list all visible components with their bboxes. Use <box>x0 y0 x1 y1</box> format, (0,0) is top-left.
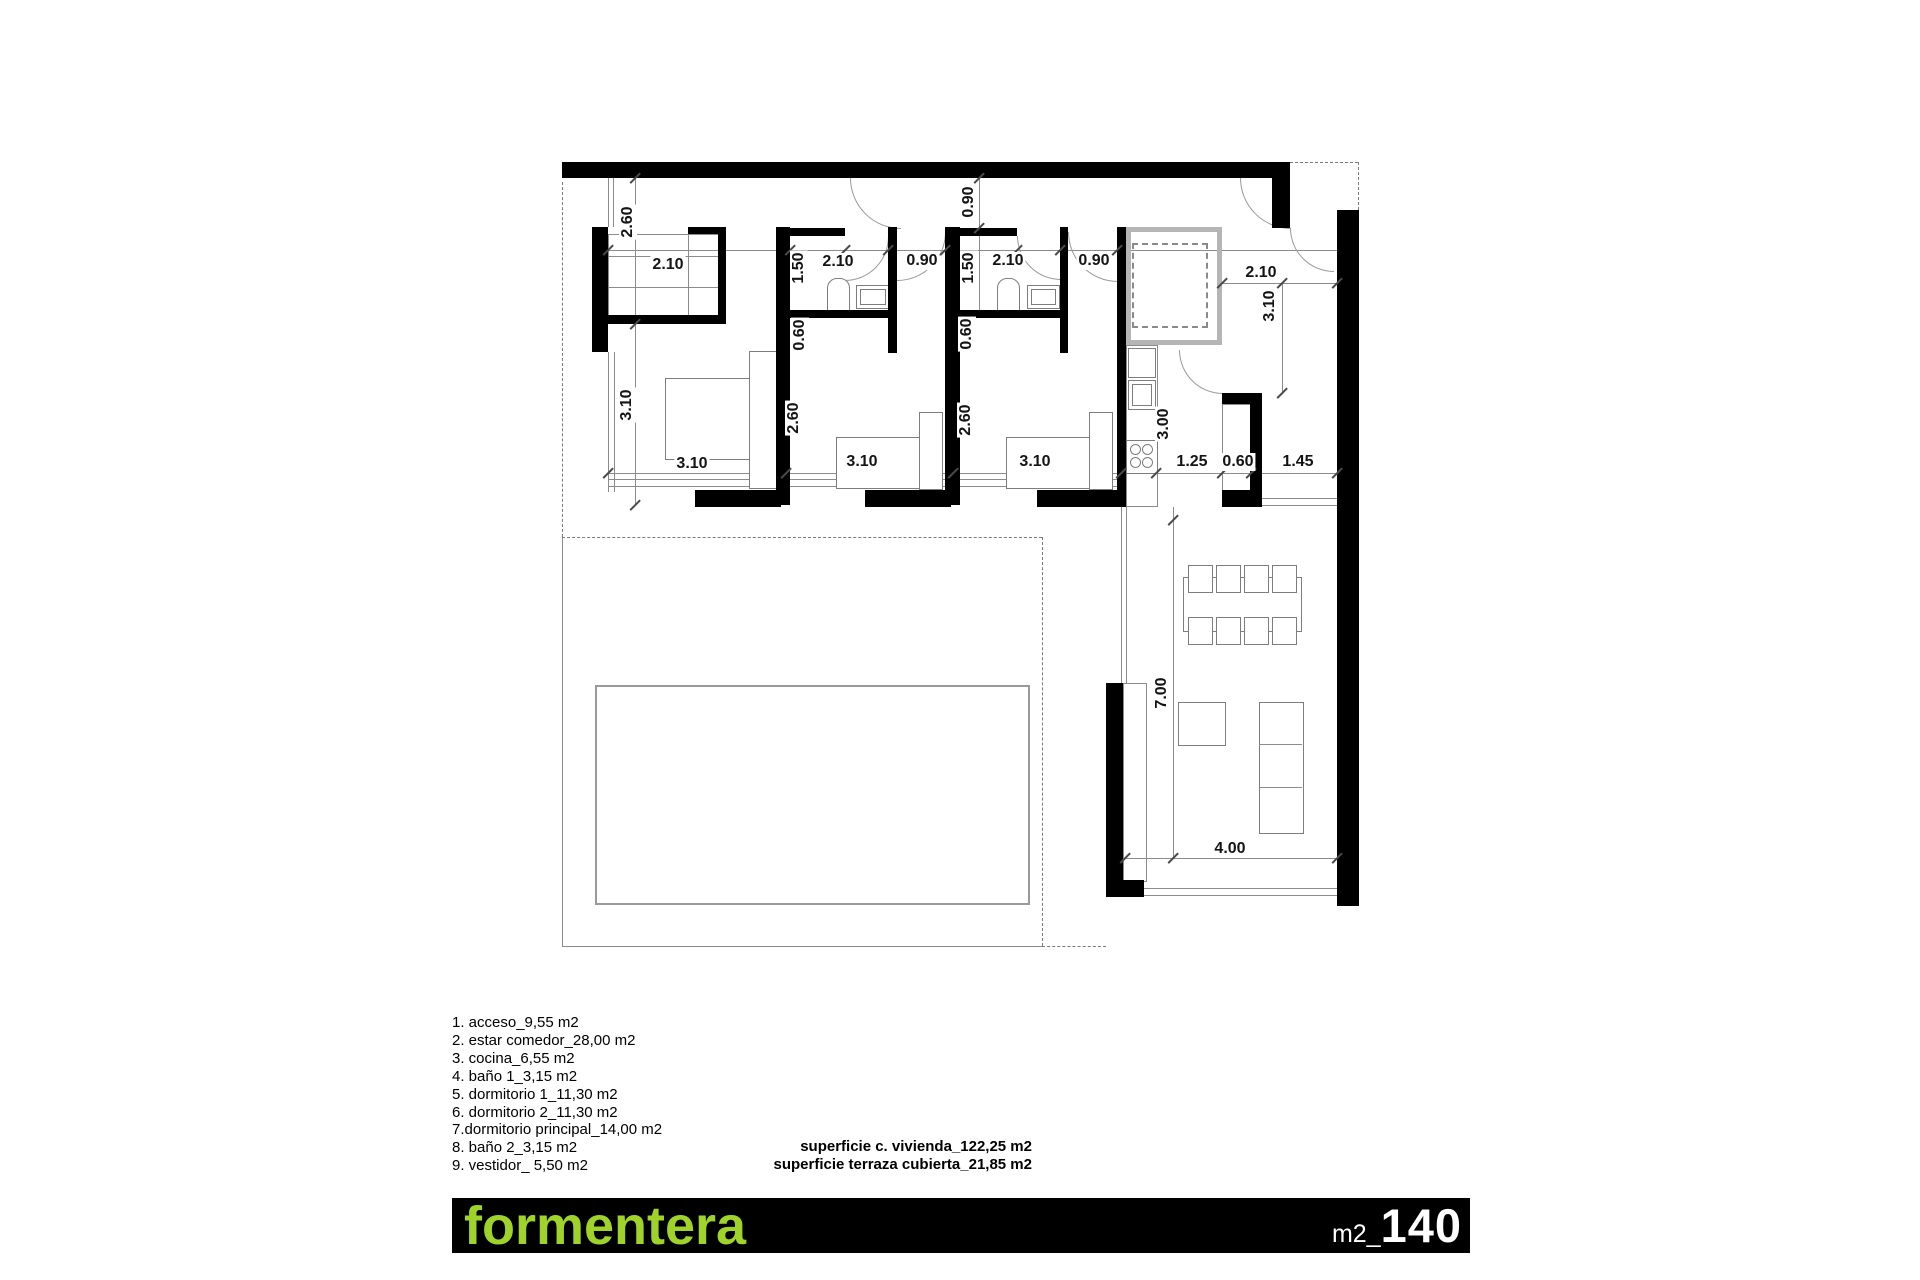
stove-burner <box>1130 444 1141 455</box>
dim-label: 3.10 <box>618 387 636 422</box>
dim-label: 0.60 <box>1220 453 1255 471</box>
glass-wall <box>1123 683 1147 882</box>
window-line <box>1144 895 1337 896</box>
toilet-fixture <box>827 278 850 312</box>
entry-boundary <box>1358 162 1359 210</box>
window-line <box>1261 505 1337 506</box>
dim-label: 0.90 <box>960 184 978 219</box>
window-line <box>1261 498 1337 499</box>
sink-basin <box>1031 289 1056 305</box>
wall-segment <box>960 228 1017 236</box>
bed-headboard <box>749 351 778 489</box>
wall-segment <box>695 490 781 507</box>
sofa-cushion-line <box>1259 787 1302 788</box>
bed-headboard <box>919 412 943 490</box>
legend-item: 5. dormitorio 1_11,30 m2 <box>452 1086 662 1104</box>
dim-label: 2.60 <box>957 402 975 437</box>
dim-label: 7.00 <box>1153 675 1171 710</box>
dim-label: 2.10 <box>1243 264 1278 282</box>
wall-segment <box>562 162 1290 178</box>
wall-segment <box>718 227 726 315</box>
dim-label: 3.10 <box>1261 288 1279 323</box>
kitchen-sink-basin <box>1132 384 1152 406</box>
window-line <box>614 352 615 492</box>
sofa-cushion-line <box>1259 744 1302 745</box>
legend-item: 4. baño 1_3,15 m2 <box>452 1068 662 1086</box>
chair-fixture <box>1244 565 1269 593</box>
chair-fixture <box>1272 617 1297 645</box>
terrace-boundary <box>562 946 1042 947</box>
wall-segment <box>790 228 845 236</box>
terrace-boundary <box>562 537 563 946</box>
dim-label: 1.45 <box>1280 453 1315 471</box>
wall-segment <box>1272 178 1290 228</box>
dim-label: 1.50 <box>960 250 978 285</box>
legend-item: 3. cocina_6,55 m2 <box>452 1050 662 1068</box>
door-arc <box>1290 228 1334 272</box>
window-line <box>1121 507 1122 683</box>
area-value: 140 <box>1381 1198 1462 1253</box>
legend-item: 1. acceso_9,55 m2 <box>452 1014 662 1032</box>
dim-label: 0.60 <box>958 316 976 351</box>
floorplan-sheet: 2.60 2.10 3.10 1.50 2.10 0.90 0.90 1.50 … <box>0 0 1920 1280</box>
wall-segment <box>776 227 790 505</box>
title-bar: formentera m2_ 140 <box>452 1198 1470 1253</box>
legend-item: 6. dormitorio 2_11,30 m2 <box>452 1104 662 1122</box>
covered-terrace-boundary <box>1042 946 1106 947</box>
dim-label: 3.10 <box>674 455 709 473</box>
toilet-fixture <box>997 278 1020 312</box>
area-unit: m2_ <box>1332 1220 1381 1249</box>
chair-fixture <box>1272 565 1297 593</box>
door-arc <box>850 178 901 229</box>
chair-fixture <box>1188 565 1213 593</box>
surface-totals: superficie c. vivienda_122,25 m2 superfi… <box>600 1138 1032 1174</box>
closet-shelf-line <box>608 287 718 288</box>
stove-burner <box>1142 444 1153 455</box>
wall-segment <box>1117 227 1126 505</box>
window-line <box>613 178 614 227</box>
dim-label: 2.10 <box>820 253 855 271</box>
stove-burner <box>1130 457 1141 468</box>
dim-label: 2.10 <box>990 252 1025 270</box>
total-vivienda: superficie c. vivienda_122,25 m2 <box>600 1138 1032 1156</box>
dimension-line <box>1125 858 1337 859</box>
chair-fixture <box>1216 565 1241 593</box>
total-terraza: superficie terraza cubierta_21,85 m2 <box>600 1156 1032 1174</box>
wall-segment <box>1222 490 1261 507</box>
wall-segment <box>608 315 726 324</box>
closet-divider-line <box>688 234 689 315</box>
area-badge: m2_ 140 <box>1332 1198 1470 1253</box>
chair-fixture <box>1244 617 1269 645</box>
dim-label: 3.10 <box>1017 453 1052 471</box>
model-name: formentera <box>452 1201 746 1251</box>
window-line <box>1126 507 1127 683</box>
terrace-boundary <box>562 182 563 537</box>
wall-segment <box>1106 683 1123 897</box>
dimension-line <box>1282 283 1283 393</box>
legend-item: 2. estar comedor_28,00 m2 <box>452 1032 662 1050</box>
wall-segment <box>1106 880 1144 897</box>
wall-segment <box>865 490 951 507</box>
fridge-fixture <box>1128 348 1156 378</box>
dim-label: 3.00 <box>1155 406 1173 441</box>
sink-basin <box>860 289 886 305</box>
bed-fixture <box>665 378 751 460</box>
dim-label: 1.50 <box>790 250 808 285</box>
dim-label: 1.25 <box>1174 453 1209 471</box>
dim-label: 4.00 <box>1212 840 1247 858</box>
door-arc <box>1179 350 1223 394</box>
chair-fixture <box>1188 617 1213 645</box>
sofa-fixture <box>1259 702 1304 834</box>
wall-segment <box>1337 210 1359 906</box>
vestidor-closet <box>608 234 720 317</box>
armchair-fixture <box>1178 702 1226 746</box>
window-line <box>1144 888 1337 889</box>
dim-label: 3.10 <box>844 453 879 471</box>
wall-segment <box>945 227 960 505</box>
storage-shelf-dashed <box>1132 243 1208 328</box>
chair-fixture <box>1216 617 1241 645</box>
cabinet-column <box>1222 404 1253 492</box>
dim-label: 2.10 <box>650 256 685 274</box>
dim-label: 2.60 <box>785 400 803 435</box>
bed-headboard <box>1089 412 1113 490</box>
dim-label: 2.60 <box>619 204 637 239</box>
dim-label: 0.90 <box>904 252 939 270</box>
dimension-line <box>979 162 980 310</box>
wall-segment <box>1037 490 1126 507</box>
dim-label: 0.60 <box>791 317 809 352</box>
entry-boundary <box>1290 162 1358 163</box>
covered-terrace-boundary <box>1042 537 1043 946</box>
dim-label: 0.90 <box>1076 252 1111 270</box>
covered-terrace-boundary <box>562 537 1042 538</box>
window-line <box>608 178 609 227</box>
wall-segment <box>592 227 608 352</box>
dimension-line <box>1173 507 1174 858</box>
legend-item: 7.dormitorio principal_14,00 m2 <box>452 1121 662 1139</box>
wall-segment <box>688 227 726 234</box>
pool-outline <box>595 685 1030 905</box>
stove-burner <box>1142 457 1153 468</box>
